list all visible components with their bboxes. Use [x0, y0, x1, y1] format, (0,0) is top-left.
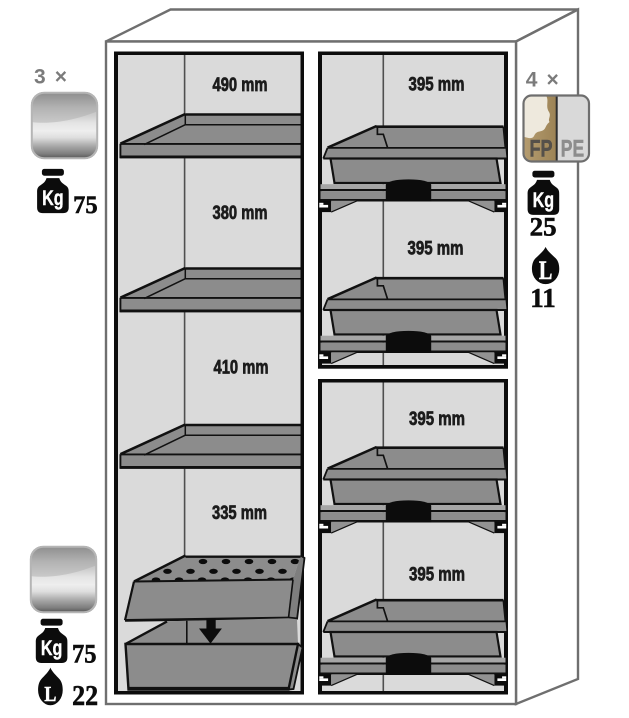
svg-text:490 mm: 490 mm [213, 74, 268, 96]
svg-text:L: L [44, 682, 56, 706]
svg-text:395 mm: 395 mm [408, 238, 464, 260]
svg-text:11: 11 [530, 283, 556, 313]
svg-text:410 mm: 410 mm [214, 357, 269, 379]
svg-text:335 mm: 335 mm [212, 502, 267, 524]
svg-text:22: 22 [72, 681, 98, 712]
svg-text:75: 75 [73, 190, 98, 219]
svg-text:395 mm: 395 mm [409, 408, 465, 430]
svg-text:380 mm: 380 mm [213, 202, 268, 224]
svg-text:75: 75 [72, 640, 97, 669]
svg-text:L: L [539, 256, 553, 285]
svg-text:PE: PE [561, 136, 584, 163]
svg-text:FP: FP [530, 136, 553, 163]
svg-text:4 ×: 4 × [526, 68, 561, 91]
svg-text:395 mm: 395 mm [409, 74, 465, 96]
svg-text:25: 25 [530, 211, 557, 241]
svg-text:395 mm: 395 mm [409, 563, 465, 585]
svg-text:3 ×: 3 × [34, 65, 69, 88]
